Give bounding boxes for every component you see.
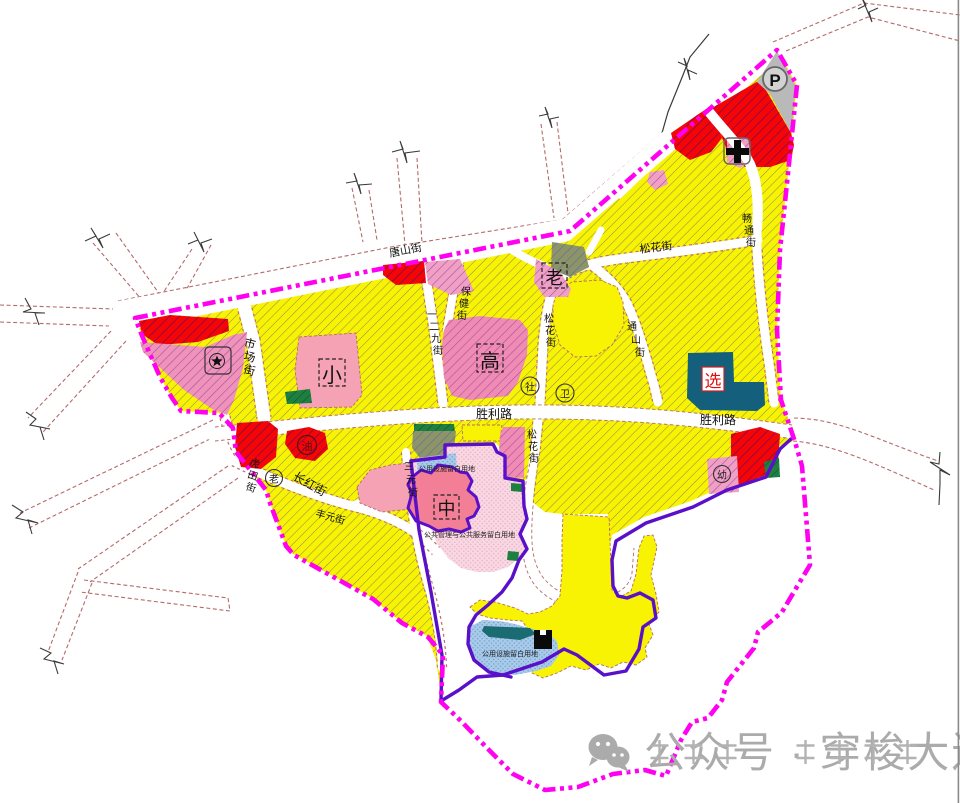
svg-text:幼: 幼 bbox=[717, 469, 727, 482]
svg-text:油: 油 bbox=[302, 439, 313, 453]
svg-text:公共管理与公共服务留白用地: 公共管理与公共服务留白用地 bbox=[424, 530, 515, 539]
svg-text:选: 选 bbox=[705, 372, 722, 391]
svg-text:胜利路: 胜利路 bbox=[476, 406, 512, 421]
svg-text:中: 中 bbox=[438, 499, 456, 519]
svg-text:社: 社 bbox=[525, 381, 535, 394]
svg-text:卫: 卫 bbox=[560, 390, 570, 401]
svg-text:公众号 · 穿梭大连: 公众号 · 穿梭大连 bbox=[644, 729, 960, 776]
svg-text:公用设施留白用地: 公用设施留白用地 bbox=[419, 464, 475, 473]
svg-text:老: 老 bbox=[269, 473, 279, 486]
svg-text:老: 老 bbox=[546, 268, 564, 288]
svg-text:高: 高 bbox=[480, 350, 500, 373]
svg-text:胜利路: 胜利路 bbox=[700, 412, 736, 427]
svg-text:P: P bbox=[769, 71, 780, 90]
svg-text:小: 小 bbox=[322, 364, 342, 387]
svg-text:公用设施留白用地: 公用设施留白用地 bbox=[482, 649, 538, 658]
